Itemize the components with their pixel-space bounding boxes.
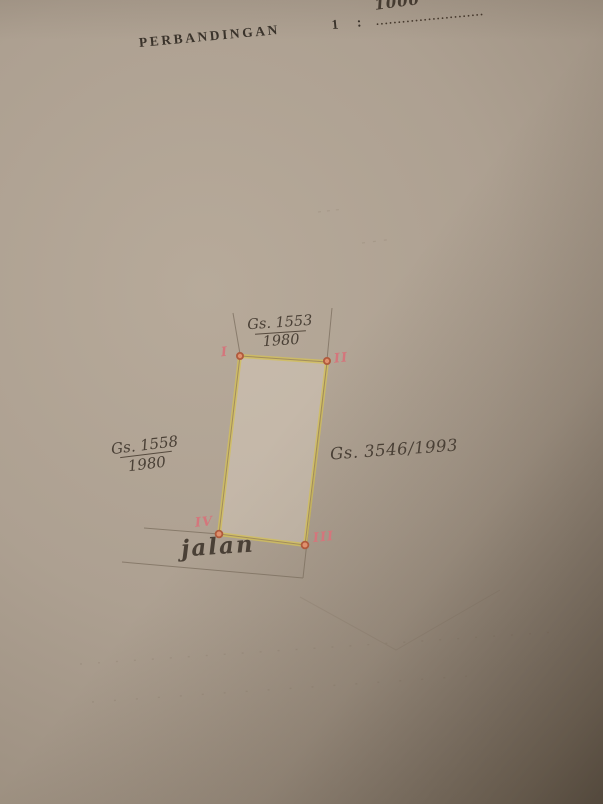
corner-point-i [237, 353, 243, 359]
plot-diagram [0, 0, 603, 804]
document-photo: PERBANDINGAN 1 : .......................… [0, 0, 603, 804]
witness-line-above-corner-i [233, 313, 240, 354]
witness-line-above-corner-ii [327, 308, 332, 360]
corner-label-iii: III [312, 529, 335, 546]
corner-label-iv: IV [194, 514, 214, 531]
corner-label-i: I [220, 345, 229, 361]
corner-label-ii: II [333, 350, 349, 366]
road-lower-edge-line [122, 562, 303, 578]
corner-point-ii [324, 358, 330, 364]
parcel-boundary-highlight [219, 356, 327, 545]
parcel-ref-top: Gs. 1553 1980 [245, 314, 316, 353]
road-label: jalan [180, 531, 255, 561]
corner-point-iii [302, 542, 309, 549]
parcel-ref-top-year: 1980 [255, 330, 307, 351]
